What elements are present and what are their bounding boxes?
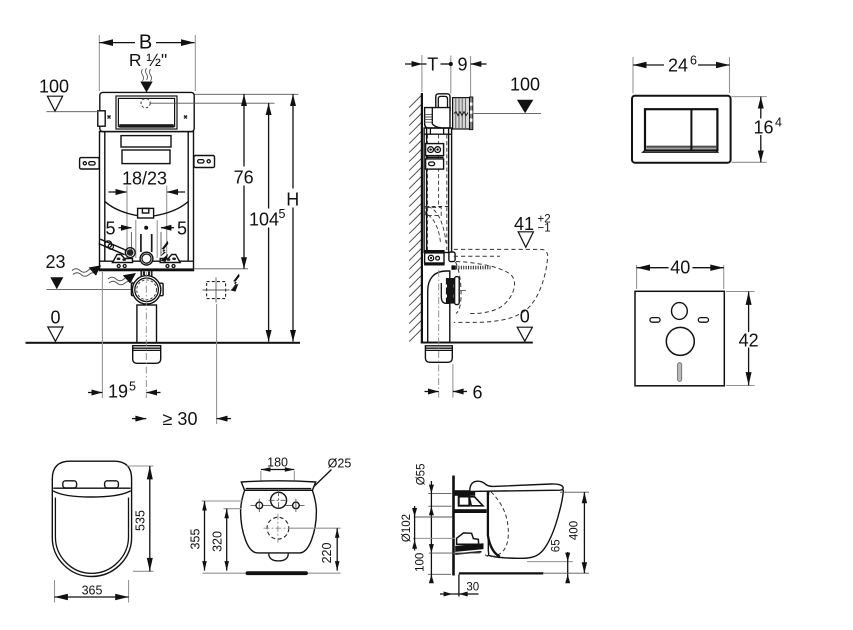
svg-text:Ø55: Ø55 xyxy=(415,464,427,486)
svg-text:100: 100 xyxy=(415,553,427,572)
svg-text:Ø25: Ø25 xyxy=(328,457,352,471)
svg-text:535: 535 xyxy=(134,510,148,531)
svg-text:100: 100 xyxy=(510,75,540,95)
svg-text:16: 16 xyxy=(754,118,774,138)
svg-text:−1: −1 xyxy=(538,223,551,235)
svg-text:30: 30 xyxy=(466,581,479,593)
svg-text:65: 65 xyxy=(551,539,563,552)
svg-text:4: 4 xyxy=(775,116,782,130)
svg-text:H: H xyxy=(286,190,299,210)
svg-text:355: 355 xyxy=(189,529,203,550)
svg-text:5: 5 xyxy=(279,207,286,221)
svg-text:104: 104 xyxy=(249,210,279,230)
svg-text:6: 6 xyxy=(472,383,482,403)
svg-text:42: 42 xyxy=(739,331,759,351)
svg-text:Ø102: Ø102 xyxy=(401,514,413,542)
svg-text:365: 365 xyxy=(82,583,103,597)
svg-text:0: 0 xyxy=(520,307,530,327)
svg-text:41: 41 xyxy=(514,214,534,234)
svg-text:180: 180 xyxy=(267,456,288,470)
svg-text:23: 23 xyxy=(45,252,65,272)
svg-text:40: 40 xyxy=(670,258,690,278)
svg-text:18/23: 18/23 xyxy=(122,169,167,189)
svg-text:5: 5 xyxy=(105,219,115,239)
svg-text:320: 320 xyxy=(211,531,225,552)
svg-text:5: 5 xyxy=(177,219,187,239)
svg-text:0: 0 xyxy=(50,308,60,328)
svg-text:76: 76 xyxy=(234,168,254,188)
svg-text:T: T xyxy=(427,55,438,75)
svg-text:9: 9 xyxy=(457,55,467,75)
svg-text:5: 5 xyxy=(129,380,136,394)
svg-text:≥ 30: ≥ 30 xyxy=(163,409,198,429)
svg-text:220: 220 xyxy=(320,543,334,564)
svg-text:100: 100 xyxy=(39,77,69,97)
svg-text:400: 400 xyxy=(568,521,580,540)
svg-text:6: 6 xyxy=(690,54,697,68)
svg-text:24: 24 xyxy=(668,56,688,76)
svg-text:19: 19 xyxy=(108,382,128,402)
svg-text:R ½": R ½" xyxy=(129,50,167,70)
